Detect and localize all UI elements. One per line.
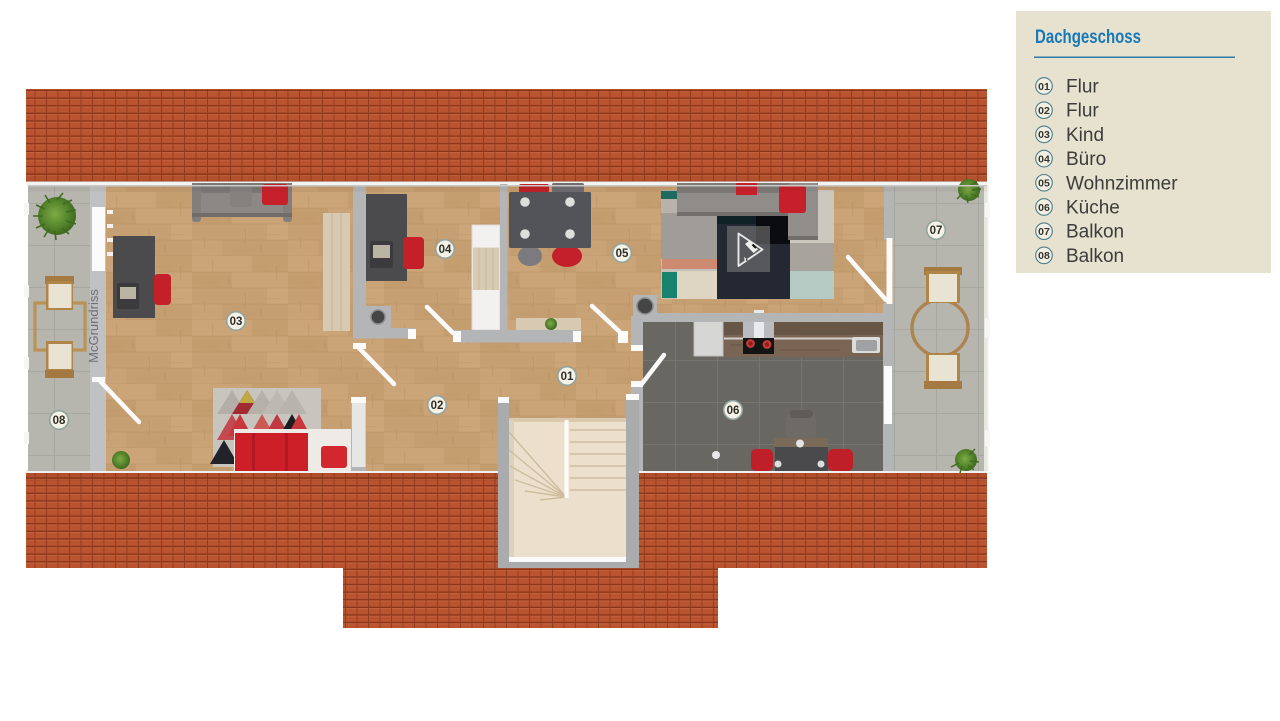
svg-text:05: 05 <box>1038 178 1050 190</box>
svg-text:03: 03 <box>1038 129 1050 141</box>
svg-text:Wohnzimmer: Wohnzimmer <box>1066 173 1178 194</box>
svg-text:05: 05 <box>616 248 629 260</box>
svg-text:03: 03 <box>230 316 243 328</box>
svg-text:Balkon: Balkon <box>1066 222 1124 243</box>
svg-text:Küche: Küche <box>1066 198 1120 219</box>
svg-text:Balkon: Balkon <box>1066 246 1124 267</box>
svg-text:07: 07 <box>1038 226 1050 238</box>
svg-text:Dachgeschoss: Dachgeschoss <box>1035 27 1141 48</box>
svg-text:04: 04 <box>1038 153 1050 165</box>
svg-text:01: 01 <box>561 371 574 383</box>
svg-text:01: 01 <box>1038 81 1050 93</box>
svg-text:Büro: Büro <box>1066 149 1106 170</box>
svg-text:06: 06 <box>727 405 740 417</box>
svg-text:02: 02 <box>431 400 444 412</box>
svg-text:02: 02 <box>1038 105 1050 117</box>
svg-text:06: 06 <box>1038 202 1050 214</box>
svg-text:07: 07 <box>930 225 943 237</box>
svg-text:08: 08 <box>53 415 66 427</box>
svg-text:Flur: Flur <box>1066 77 1099 98</box>
svg-text:04: 04 <box>439 244 452 256</box>
svg-text:McGrundriss: McGrundriss <box>86 289 101 363</box>
svg-text:08: 08 <box>1038 250 1050 262</box>
svg-text:Kind: Kind <box>1066 125 1104 146</box>
svg-text:Flur: Flur <box>1066 101 1099 122</box>
